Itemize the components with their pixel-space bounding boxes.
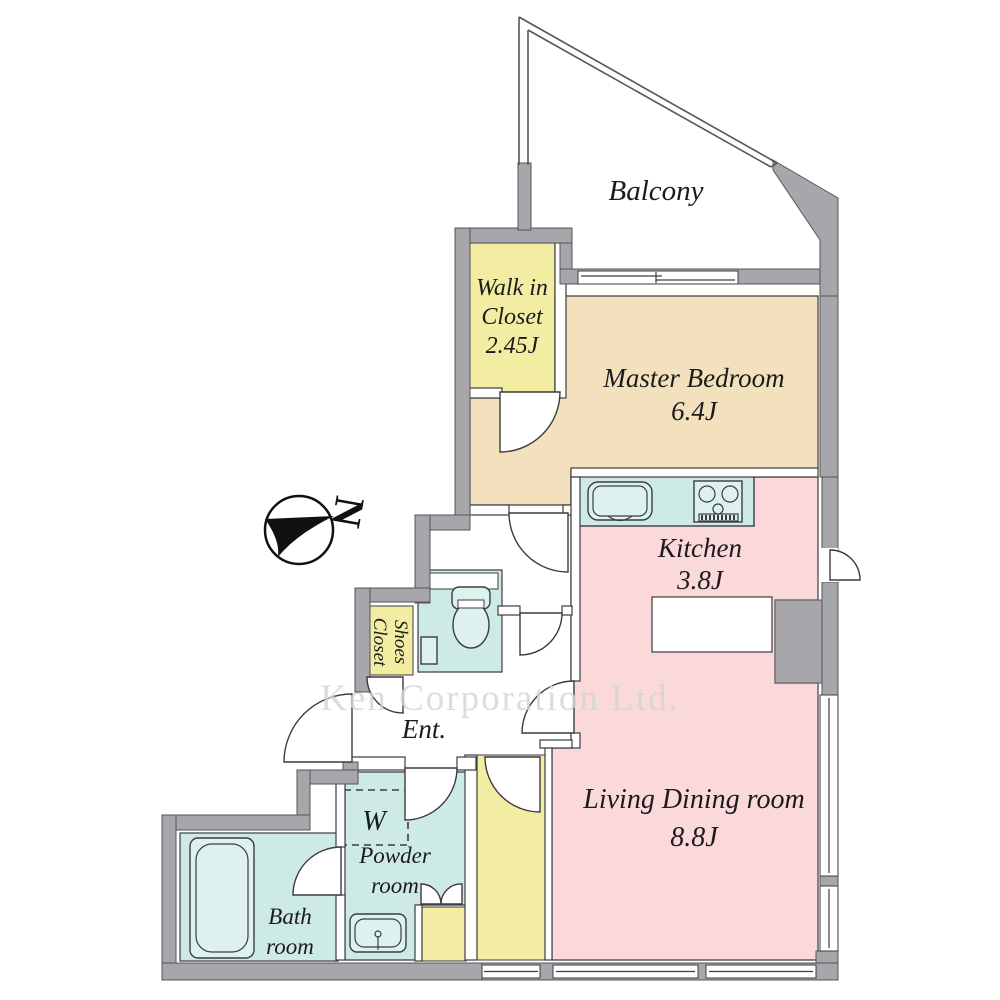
stove-icon	[694, 481, 742, 522]
balcony-sliding-door	[578, 271, 738, 284]
walk-in-closet-label-line1: Walk in	[476, 275, 548, 301]
walk-in-closet-area: 2.45J	[486, 333, 540, 359]
washer-label: W	[362, 806, 388, 837]
linen-closet	[420, 907, 466, 961]
kitchen-sink-icon	[588, 482, 652, 521]
watermark-text: Ken Corporation Ltd.	[320, 678, 680, 719]
living-dining-label: Living Dining room	[582, 784, 804, 815]
shoes-closet-label: Shoes Closet	[369, 618, 411, 667]
shoes-closet-label-line2: Closet	[369, 618, 390, 667]
toilet-door	[520, 613, 562, 655]
balcony-railing	[519, 17, 777, 167]
kitchen-service-door	[830, 550, 860, 580]
bottom-window-west	[482, 965, 540, 978]
bottom-window-center	[553, 965, 698, 978]
floor-plan-page: N Ken Corporation Ltd. Balcony Walk in C…	[0, 0, 1000, 1000]
right-wall-window-upper	[820, 695, 838, 876]
vanity-sink-icon	[350, 914, 406, 952]
bottom-window-east	[706, 965, 816, 978]
north-compass: N	[265, 493, 372, 564]
master-bedroom-label: Master Bedroom	[602, 363, 784, 393]
master-bedroom-area: 6.4J	[671, 396, 719, 426]
bath-room-label-line2: room	[266, 934, 314, 959]
kitchen-area: 3.8J	[676, 565, 725, 595]
balcony-label: Balcony	[608, 175, 703, 207]
entrance-label: Ent.	[401, 714, 446, 744]
master-bedroom-door	[509, 513, 568, 572]
kitchen-island-counter	[652, 597, 772, 652]
powder-room-label-line1: Powder	[358, 843, 432, 868]
bathtub-icon	[190, 838, 254, 958]
walk-in-closet-label-line2: Closet	[481, 304, 544, 330]
right-wall-window-lower	[820, 886, 838, 951]
shoes-closet-label-line1: Shoes	[390, 620, 411, 664]
kitchen-label: Kitchen	[657, 533, 742, 563]
floor-plan-drawing: N Ken Corporation Ltd. Balcony Walk in C…	[0, 0, 1000, 1000]
powder-room-label-line2: room	[371, 873, 419, 898]
bath-room-label-line1: Bath	[268, 904, 311, 929]
living-dining-area: 8.8J	[670, 822, 719, 853]
